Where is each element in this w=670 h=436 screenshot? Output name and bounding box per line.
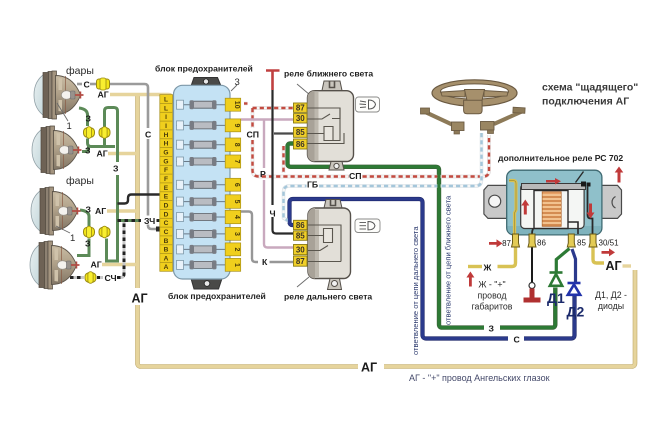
svg-text:Д2: Д2 <box>567 304 585 320</box>
svg-text:З: З <box>85 239 91 249</box>
svg-text:E: E <box>164 194 169 201</box>
svg-text:D: D <box>164 211 169 218</box>
svg-text:К: К <box>262 257 268 267</box>
svg-text:провод: провод <box>478 291 507 301</box>
svg-text:1: 1 <box>67 121 72 132</box>
svg-text:F: F <box>164 176 168 183</box>
svg-text:реле ближнего света: реле ближнего света <box>284 69 373 79</box>
svg-text:СП: СП <box>247 130 260 140</box>
svg-text:E: E <box>164 185 169 192</box>
svg-text:АГ: АГ <box>132 292 148 306</box>
svg-text:реле дальнего света: реле дальнего света <box>284 292 372 302</box>
svg-text:фары: фары <box>66 65 94 77</box>
svg-text:фары: фары <box>66 175 94 187</box>
svg-text:ГБ: ГБ <box>307 180 318 190</box>
svg-text:B: B <box>164 247 169 254</box>
svg-text:АГ: АГ <box>98 90 109 100</box>
svg-text:С: С <box>84 80 91 90</box>
svg-text:Р: Р <box>260 169 266 179</box>
svg-text:30: 30 <box>296 246 305 255</box>
svg-text:СЧ: СЧ <box>105 273 117 283</box>
svg-text:G: G <box>163 149 168 156</box>
svg-text:86: 86 <box>296 140 305 149</box>
svg-text:АГ: АГ <box>91 260 102 270</box>
svg-text:86: 86 <box>537 239 546 248</box>
svg-text:6: 6 <box>233 183 240 187</box>
svg-text:H: H <box>164 132 169 139</box>
svg-text:30/51: 30/51 <box>599 239 620 248</box>
svg-text:Д1: Д1 <box>547 290 565 306</box>
svg-text:4: 4 <box>233 215 240 219</box>
svg-text:D: D <box>164 202 169 209</box>
svg-text:блок предохранителей: блок предохранителей <box>168 291 266 301</box>
svg-text:I: I <box>165 123 167 130</box>
svg-text:СП: СП <box>349 171 362 181</box>
svg-text:L: L <box>164 97 168 104</box>
svg-text:85: 85 <box>577 239 586 248</box>
svg-text:1: 1 <box>233 263 240 267</box>
svg-text:диоды: диоды <box>598 301 624 311</box>
svg-text:З: З <box>489 324 495 334</box>
svg-text:1: 1 <box>70 233 75 244</box>
svg-text:9: 9 <box>233 123 240 127</box>
svg-text:A: A <box>164 264 169 271</box>
svg-text:З: З <box>113 164 119 174</box>
svg-text:10: 10 <box>233 101 240 109</box>
svg-text:3: 3 <box>235 77 240 88</box>
svg-text:H: H <box>164 141 169 148</box>
svg-text:C: C <box>164 229 169 236</box>
svg-text:86: 86 <box>296 221 305 230</box>
svg-text:5: 5 <box>233 200 240 204</box>
svg-text:F: F <box>164 167 168 174</box>
svg-text:ответвление от цепи дальнего с: ответвление от цепи дальнего света <box>411 226 420 355</box>
svg-text:З: З <box>86 205 92 215</box>
svg-text:габаритов: габаритов <box>472 302 513 312</box>
svg-text:30: 30 <box>296 114 305 123</box>
svg-text:87: 87 <box>296 257 305 266</box>
svg-text:З: З <box>86 114 92 124</box>
svg-text:АГ: АГ <box>95 206 106 216</box>
svg-text:3: 3 <box>233 232 240 236</box>
svg-text:C: C <box>164 220 169 227</box>
svg-text:С: С <box>145 130 152 140</box>
svg-text:87: 87 <box>296 104 305 113</box>
svg-text:8: 8 <box>233 143 240 147</box>
svg-text:схема "щадящего": схема "щадящего" <box>542 82 638 94</box>
svg-text:2: 2 <box>233 247 240 251</box>
svg-text:АГ: АГ <box>361 361 377 375</box>
svg-text:АГ - "+" провод Ангельских гла: АГ - "+" провод Ангельских глазок <box>409 373 550 383</box>
svg-text:7: 7 <box>233 160 240 164</box>
svg-text:I: I <box>165 114 167 121</box>
svg-text:дополнительное реле РС 702: дополнительное реле РС 702 <box>498 153 623 163</box>
svg-text:Ч: Ч <box>270 209 276 219</box>
svg-text:ответвление от цепи ближнего с: ответвление от цепи ближнего света <box>444 195 453 325</box>
svg-text:85: 85 <box>296 232 305 241</box>
svg-text:блок предохранителей: блок предохранителей <box>155 64 253 74</box>
svg-text:A: A <box>164 255 169 262</box>
svg-text:АГ: АГ <box>606 259 622 273</box>
svg-text:Д1, Д2 -: Д1, Д2 - <box>595 290 627 300</box>
svg-text:Ж: Ж <box>483 263 492 273</box>
svg-text:Ж - "+": Ж - "+" <box>478 280 505 290</box>
svg-text:подключения АГ: подключения АГ <box>542 96 629 108</box>
svg-text:B: B <box>164 238 169 245</box>
svg-text:АГ: АГ <box>97 149 108 159</box>
svg-text:87: 87 <box>502 239 511 248</box>
svg-text:С: С <box>514 335 521 345</box>
svg-text:З: З <box>85 146 91 156</box>
svg-text:G: G <box>163 158 168 165</box>
svg-text:85: 85 <box>296 128 305 137</box>
svg-text:L: L <box>164 105 168 112</box>
svg-text:ЗЧ: ЗЧ <box>144 216 155 226</box>
